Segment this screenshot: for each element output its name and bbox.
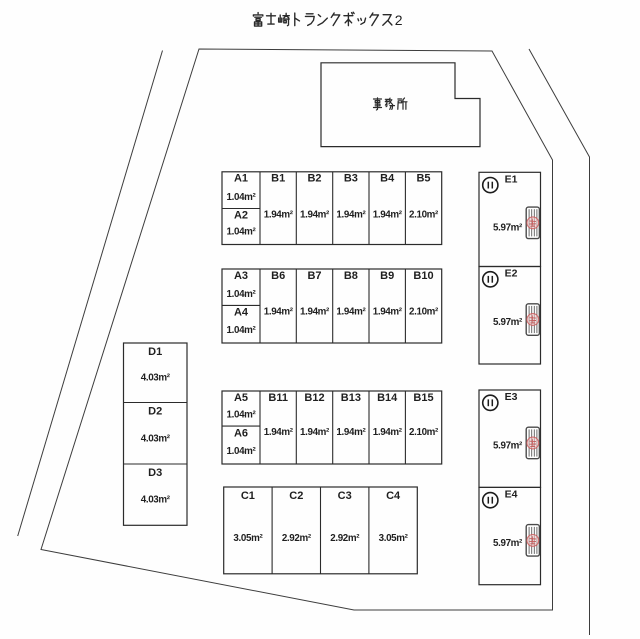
svg-text:B10: B10 [413,270,433,282]
svg-text:C2: C2 [289,490,303,502]
svg-text:B9: B9 [380,270,394,282]
svg-text:B7: B7 [307,270,321,282]
svg-text:B12: B12 [304,392,324,404]
svg-text:5.97m²: 5.97m² [493,317,523,328]
svg-text:1.04m²: 1.04m² [227,289,257,300]
svg-text:4.03m²: 4.03m² [141,433,171,444]
svg-text:C4: C4 [386,490,401,502]
svg-text:B1: B1 [271,173,285,185]
svg-text:1.94m²: 1.94m² [336,306,366,317]
svg-text:1.94m²: 1.94m² [336,210,366,221]
svg-text:1.94m²: 1.94m² [264,210,294,221]
svg-text:A4: A4 [234,307,249,319]
svg-text:2.10m²: 2.10m² [409,210,439,221]
svg-text:B3: B3 [344,173,358,185]
svg-text:D2: D2 [148,406,162,418]
svg-text:1.94m²: 1.94m² [373,210,403,221]
svg-text:B8: B8 [344,270,358,282]
svg-text:A1: A1 [234,173,248,185]
svg-text:E4: E4 [505,489,518,501]
svg-text:B11: B11 [268,392,288,404]
svg-text:B2: B2 [307,173,321,185]
svg-text:3.05m²: 3.05m² [379,533,409,544]
svg-text:1.94m²: 1.94m² [336,427,366,438]
svg-text:E2: E2 [505,268,518,280]
svg-text:1.04m²: 1.04m² [227,325,257,336]
svg-text:3.05m²: 3.05m² [233,533,263,544]
svg-text:B6: B6 [271,270,285,282]
svg-text:1.94m²: 1.94m² [264,427,294,438]
svg-text:A5: A5 [234,392,248,404]
svg-text:B4: B4 [380,173,395,185]
svg-text:2.10m²: 2.10m² [409,306,439,317]
svg-text:1.04m²: 1.04m² [227,226,257,237]
svg-text:5.97m²: 5.97m² [493,440,523,451]
svg-text:E3: E3 [505,391,518,403]
svg-text:C1: C1 [241,490,255,502]
svg-text:E1: E1 [505,174,518,186]
svg-text:1.94m²: 1.94m² [300,427,330,438]
svg-text:B13: B13 [341,392,361,404]
svg-text:B5: B5 [416,173,430,185]
svg-text:D3: D3 [148,467,162,479]
svg-text:4.03m²: 4.03m² [141,495,171,506]
svg-text:1.94m²: 1.94m² [300,306,330,317]
svg-text:2.92m²: 2.92m² [330,533,360,544]
svg-text:1.04m²: 1.04m² [227,446,257,457]
svg-text:1.94m²: 1.94m² [373,427,403,438]
svg-text:1.04m²: 1.04m² [227,192,257,203]
svg-text:D1: D1 [148,346,162,358]
svg-text:B15: B15 [413,392,433,404]
svg-text:5.97m²: 5.97m² [493,223,523,234]
svg-text:2.10m²: 2.10m² [409,427,439,438]
svg-text:A2: A2 [234,210,248,222]
svg-text:2: 2 [395,12,403,28]
svg-text:A6: A6 [234,427,248,439]
svg-text:1.94m²: 1.94m² [264,306,294,317]
svg-text:4.03m²: 4.03m² [141,373,171,384]
svg-text:2.92m²: 2.92m² [282,533,312,544]
svg-text:1.04m²: 1.04m² [227,410,257,421]
svg-text:5.97m²: 5.97m² [493,538,523,549]
svg-text:B14: B14 [377,392,398,404]
svg-text:1.94m²: 1.94m² [300,210,330,221]
svg-text:C3: C3 [338,490,352,502]
svg-text:A3: A3 [234,270,248,282]
svg-text:1.94m²: 1.94m² [373,306,403,317]
